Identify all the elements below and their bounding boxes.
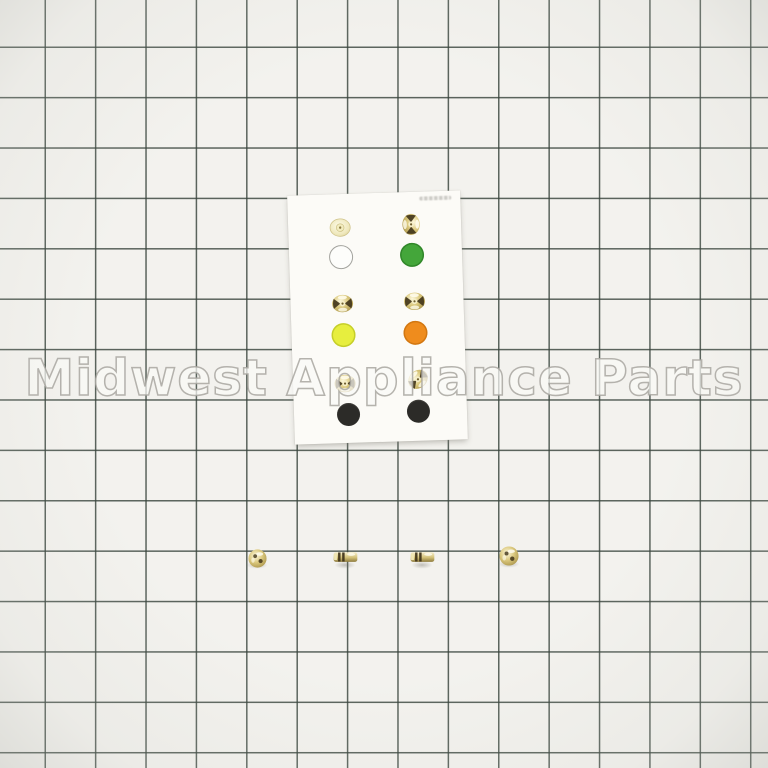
brass-orifice-pale-icon (329, 218, 352, 238)
brass-orifice-icon (331, 294, 354, 314)
loose-brass-orifice-ball-icon (499, 546, 519, 566)
brass-orifice-icon (401, 213, 421, 236)
color-dot-black (407, 399, 431, 423)
color-dot-orange (403, 320, 428, 345)
brass-orifice-icon (334, 374, 357, 394)
loose-brass-orifice-side-icon (409, 550, 436, 564)
loose-brass-orifice-side-icon (332, 550, 359, 564)
orifice-sample-card (287, 190, 468, 444)
color-dot-yellow (331, 323, 356, 348)
brass-orifice-icon (403, 291, 426, 311)
card-print-smudge (419, 196, 451, 201)
loose-brass-orifice-ball-icon (248, 549, 267, 568)
product-photo: Midwest Appliance Parts (0, 0, 768, 768)
color-dot-black (337, 403, 361, 427)
color-dot-white (329, 245, 354, 270)
color-dot-green (400, 243, 425, 268)
brass-orifice-icon (403, 365, 432, 394)
